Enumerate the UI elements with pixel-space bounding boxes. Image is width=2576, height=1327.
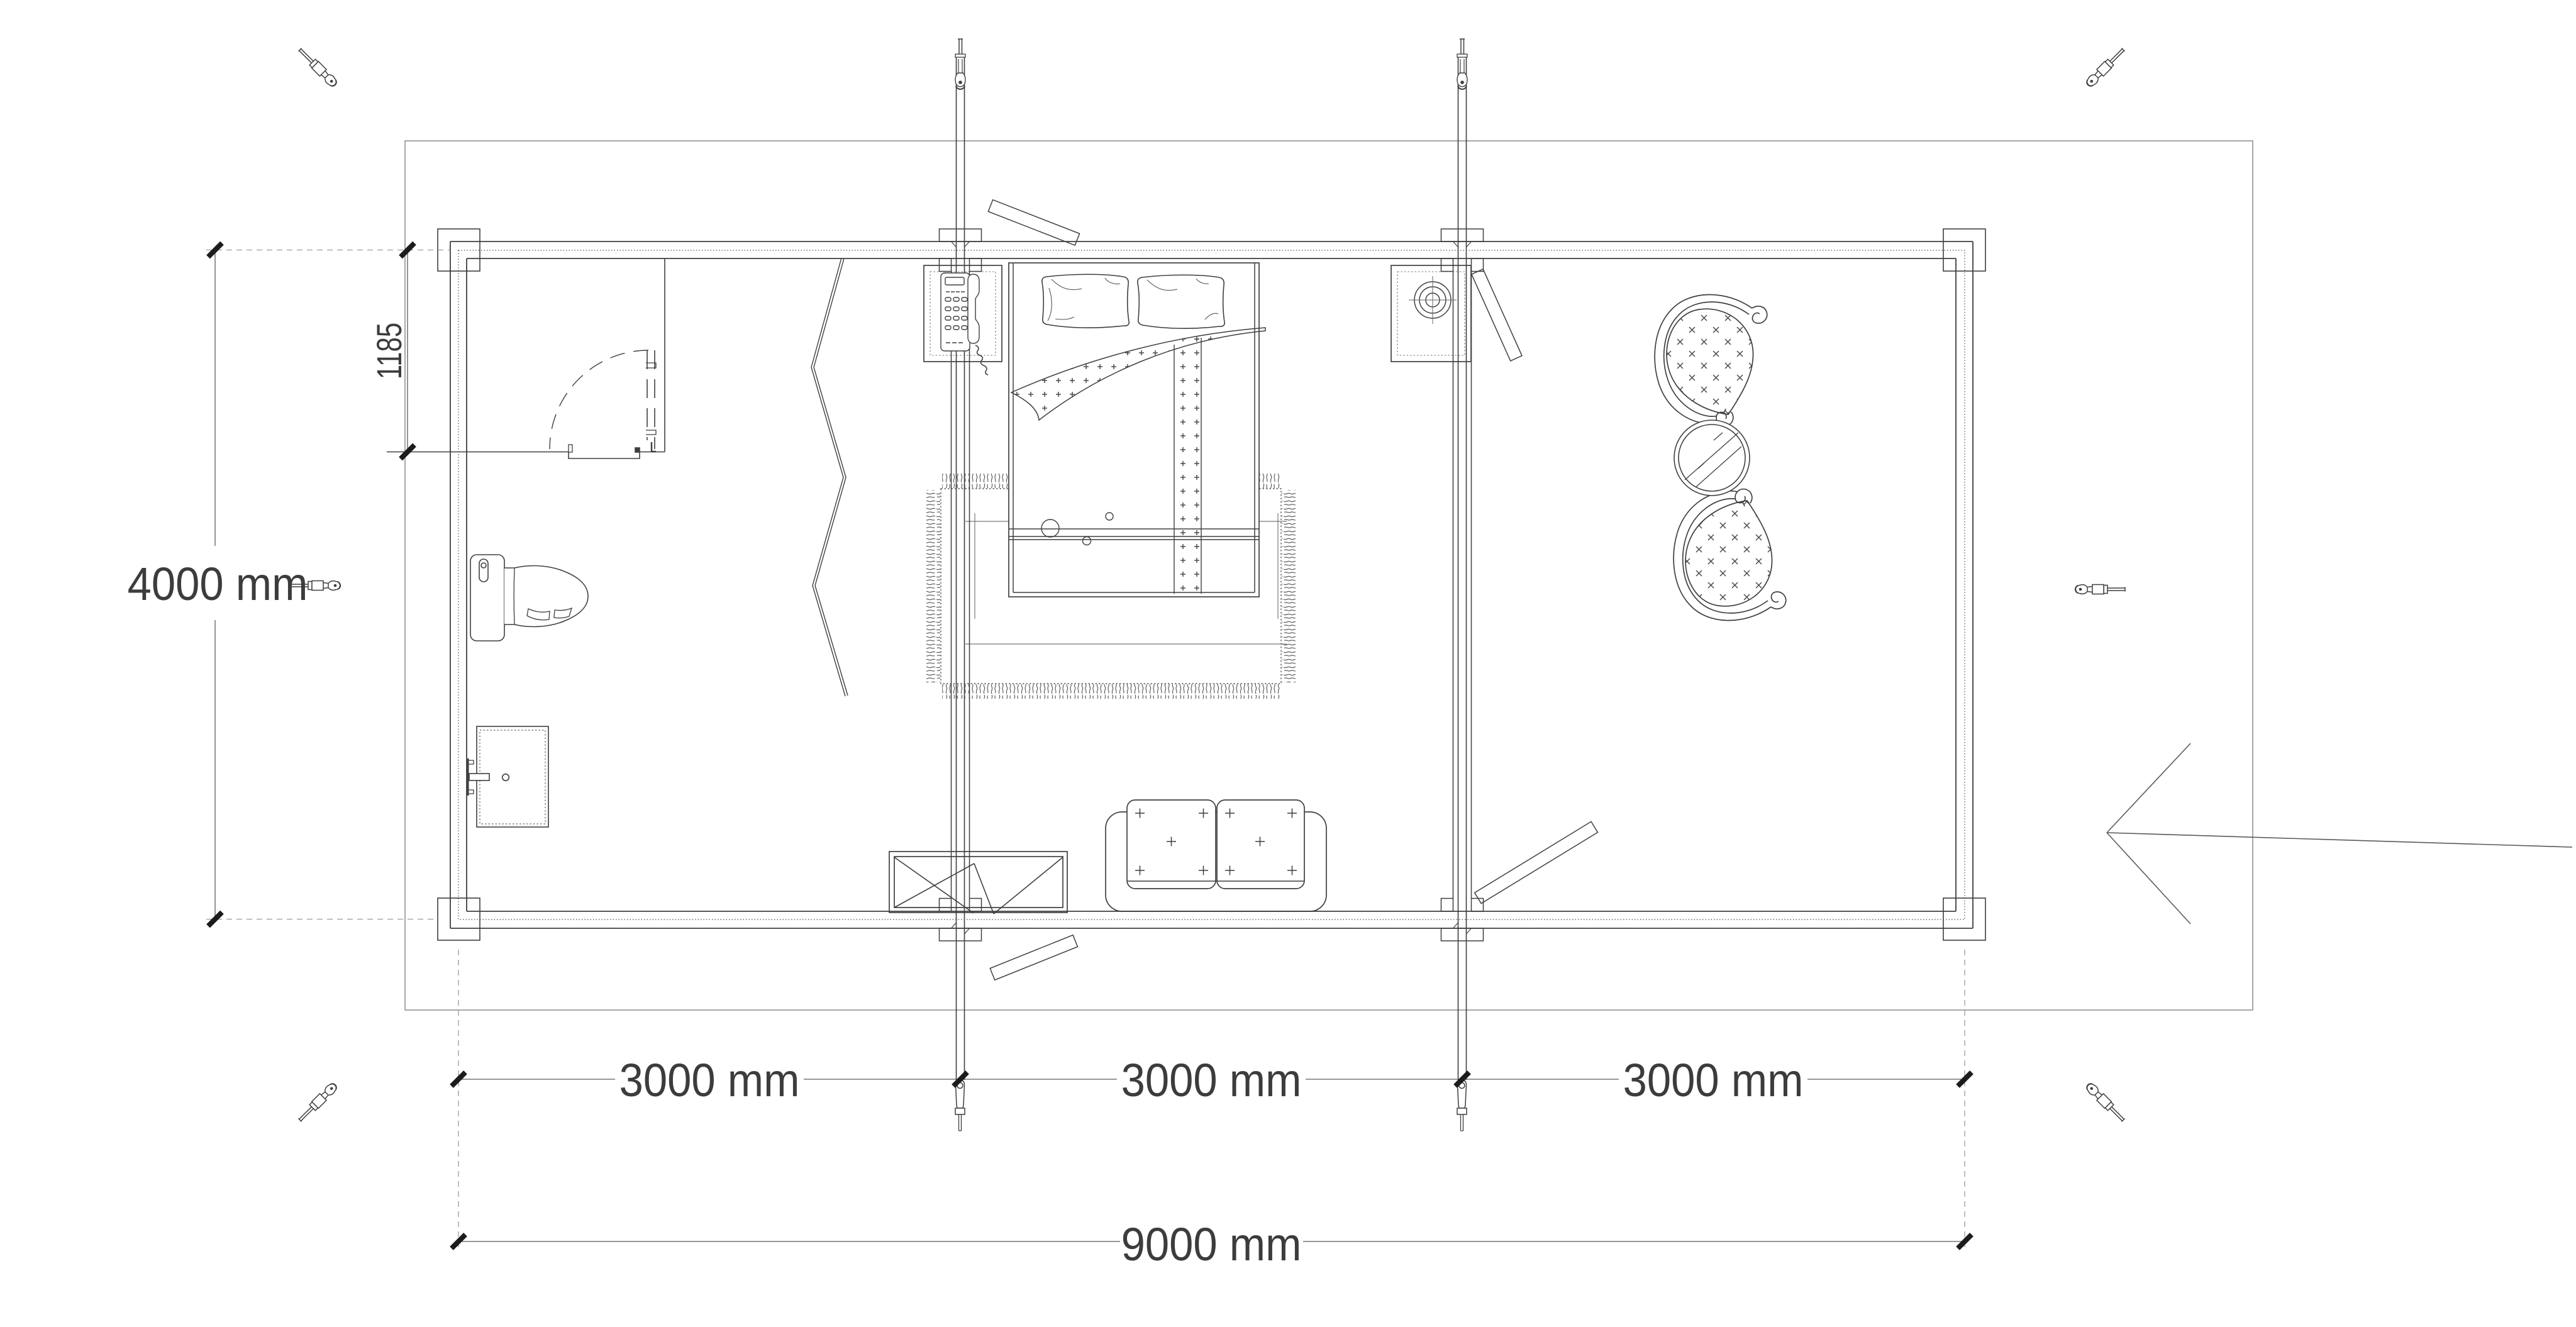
svg-text:3000 mm: 3000 mm [1121, 1055, 1302, 1107]
svg-text:3000 mm: 3000 mm [1623, 1055, 1804, 1107]
svg-text:3000 mm: 3000 mm [619, 1055, 800, 1107]
svg-text:4000 mm: 4000 mm [128, 558, 308, 611]
svg-text:9000 mm: 9000 mm [1121, 1219, 1302, 1271]
svg-text:1185: 1185 [370, 323, 409, 379]
